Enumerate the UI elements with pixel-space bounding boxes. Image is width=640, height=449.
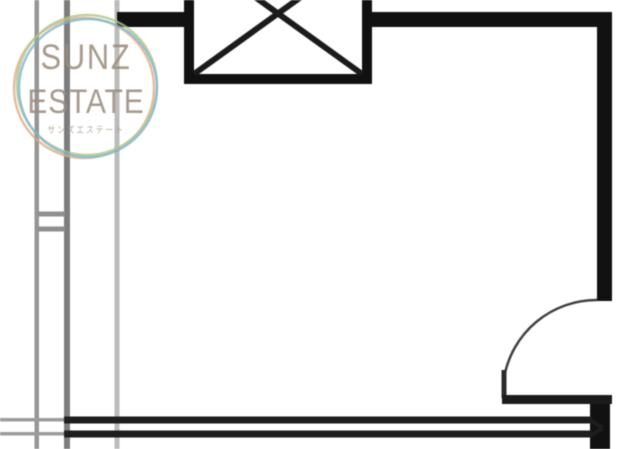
balcony-rail-top-ext: [0, 418, 67, 422]
logo-title-line2: ESTATE: [10, 85, 161, 119]
door-threshold: [502, 395, 612, 404]
floorplan-page: SUNZ ESTATE サンズエステート: [0, 0, 640, 449]
logo-title-line1: SUNZ: [10, 40, 161, 75]
left-wall-window-mark-1: [38, 212, 65, 217]
top-wall-right: [363, 12, 612, 27]
balcony-rail-top: [64, 417, 592, 424]
sunz-estate-watermark: SUNZ ESTATE サンズエステート: [0, 0, 172, 172]
logo-subtitle-japanese: サンズエステート: [10, 126, 161, 135]
left-wall-window-mark-2: [38, 227, 65, 232]
door-swing-arc: [504, 300, 597, 378]
right-wall-upper: [597, 12, 612, 301]
balcony-rail-bottom-ext: [0, 432, 67, 436]
balcony-rail-bottom: [64, 431, 592, 438]
door-panel: [502, 370, 507, 398]
